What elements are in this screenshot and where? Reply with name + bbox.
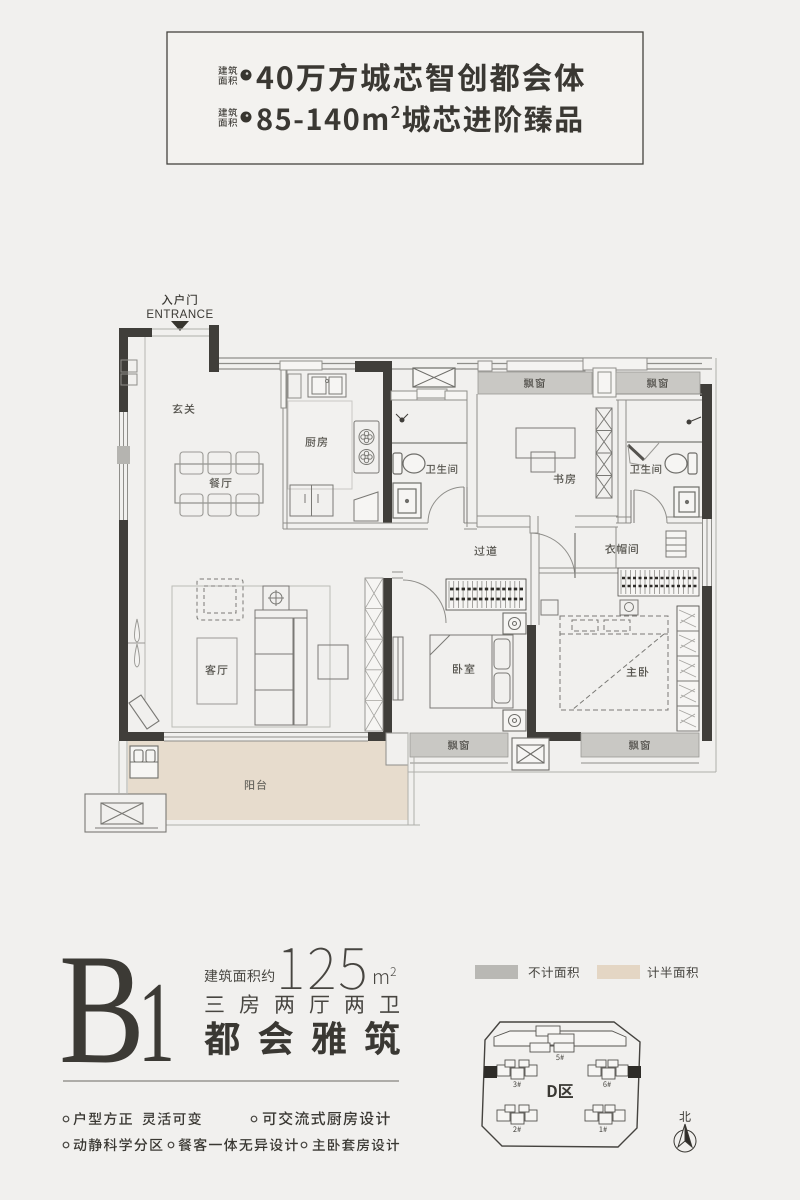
svg-text:ENTRANCE: ENTRANCE <box>146 309 213 321</box>
svg-text:B: B <box>59 922 145 1097</box>
svg-text:1: 1 <box>138 959 175 1086</box>
